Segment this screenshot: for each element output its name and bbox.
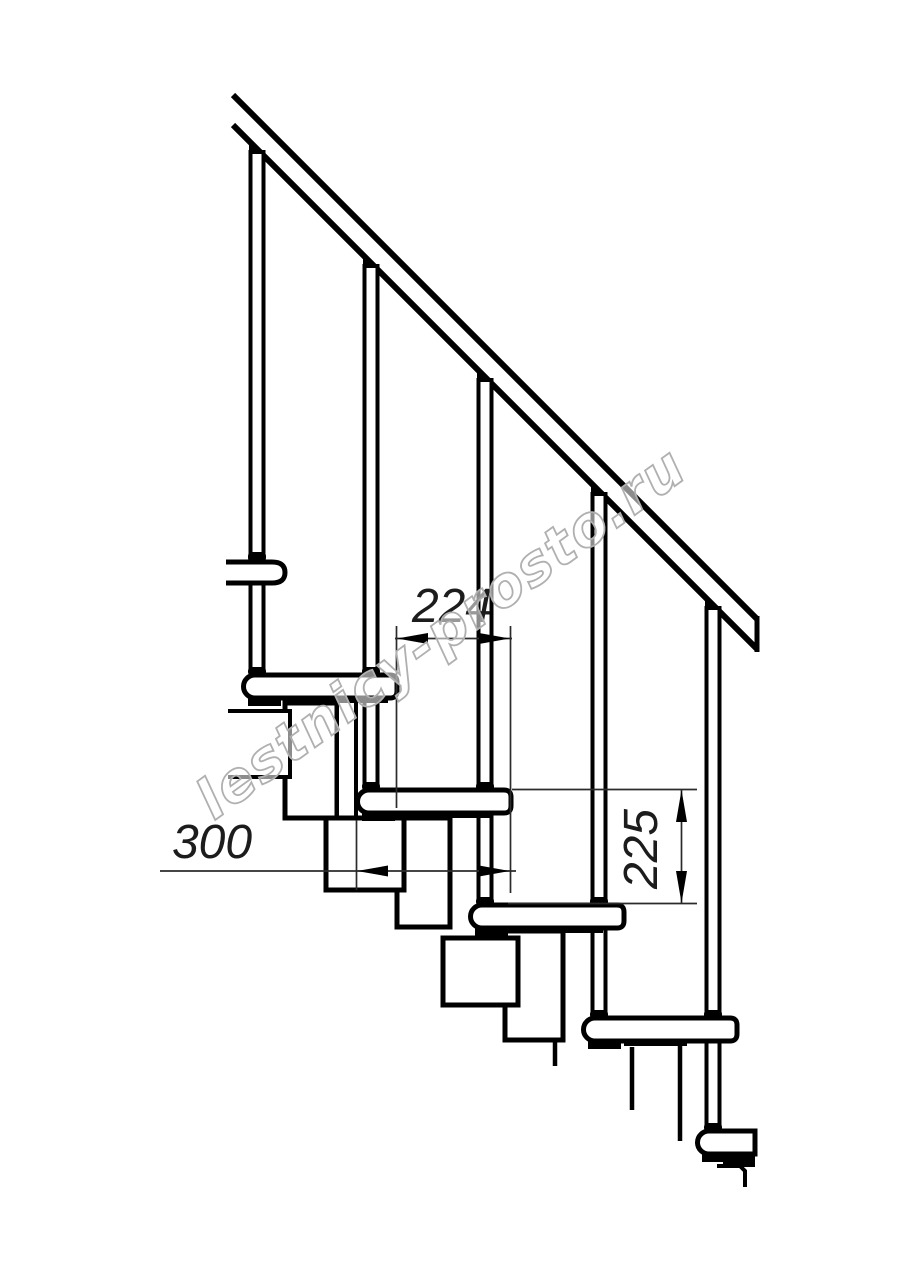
handrail-bracket xyxy=(226,562,285,583)
arrowhead-right-icon xyxy=(479,866,510,877)
baluster-collar xyxy=(704,1010,722,1019)
arrowhead-down-icon xyxy=(676,871,687,903)
mount-plate xyxy=(723,1155,755,1167)
baluster-foot xyxy=(362,782,380,791)
module-break-line xyxy=(717,1166,745,1187)
arrowhead-up-icon xyxy=(676,790,687,822)
baluster-5 xyxy=(707,608,720,1132)
baluster-foot xyxy=(590,1010,608,1019)
handrail-top-edge xyxy=(233,95,757,619)
tread-2 xyxy=(358,790,512,813)
baluster-foot xyxy=(248,667,266,676)
baluster-collar xyxy=(248,552,266,562)
baluster-collar xyxy=(476,782,494,791)
staircase-elevation-drawing: 224 300 225 lestnicy-prosto.ru xyxy=(0,0,914,1280)
dimension-label-300: 300 xyxy=(172,816,252,869)
baluster-4 xyxy=(593,494,606,1019)
tread-4 xyxy=(584,1018,738,1041)
baluster-collar xyxy=(590,897,608,906)
tread-3 xyxy=(471,905,625,928)
module-box-3 xyxy=(443,938,518,1005)
dimension-label-225: 225 xyxy=(615,809,668,890)
module-box-2 xyxy=(326,818,404,890)
baluster-foot xyxy=(476,897,494,906)
tread-5 xyxy=(698,1131,756,1154)
baluster-foot xyxy=(704,1123,722,1132)
baluster-1 xyxy=(251,152,264,676)
drawing-canvas: 224 300 225 lestnicy-prosto.ru xyxy=(0,0,914,1280)
